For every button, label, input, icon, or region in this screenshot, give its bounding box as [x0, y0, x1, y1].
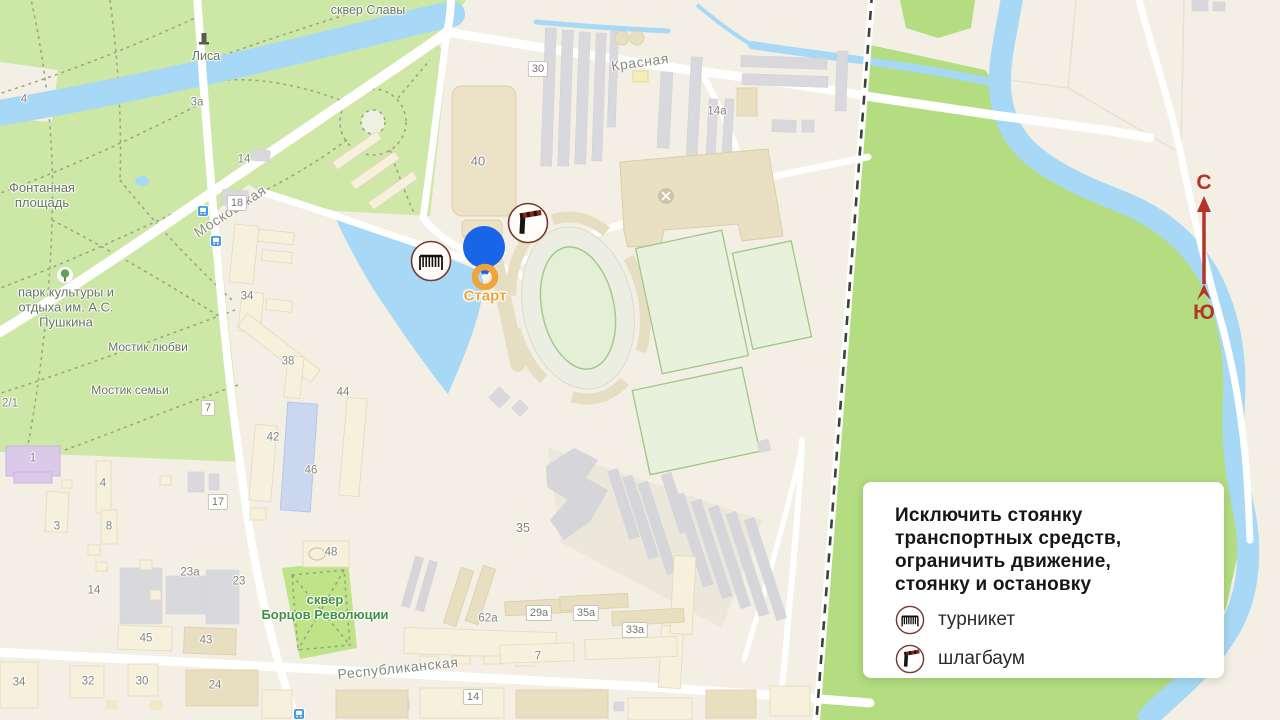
panel-title-line: транспортных средств,	[895, 527, 1200, 550]
legend-row-barrier: шлагбаум	[895, 644, 1200, 674]
compass-arrow-icon	[1193, 196, 1215, 300]
info-panel: Исключить стоянку транспортных средств, …	[863, 482, 1224, 678]
barrier-icon	[895, 644, 925, 674]
compass: С Ю	[1182, 172, 1226, 324]
tree-icon	[57, 267, 73, 283]
map-screenshot: МосковскаяКраснаяРеспубликанскаясквер Сл…	[0, 0, 1280, 720]
panel-title-line: Исключить стоянку	[895, 504, 1200, 527]
turnstile-icon	[895, 605, 925, 635]
panel-title: Исключить стоянку транспортных средств, …	[895, 504, 1200, 596]
panel-title-line: ограничить движение,	[895, 550, 1200, 573]
legend-label-turnstile: турникет	[938, 609, 1015, 631]
barrier-map-icon[interactable]	[507, 202, 549, 244]
legend-row-turnstile: турникет	[895, 605, 1200, 635]
turnstile-map-icon[interactable]	[410, 240, 452, 282]
compass-south-label: Ю	[1182, 302, 1226, 324]
panel-title-line: стоянку и остановку	[895, 573, 1200, 596]
legend-label-barrier: шлагбаум	[938, 648, 1025, 670]
compass-north-label: С	[1182, 172, 1226, 194]
start-pin-label: Старт	[464, 288, 507, 305]
